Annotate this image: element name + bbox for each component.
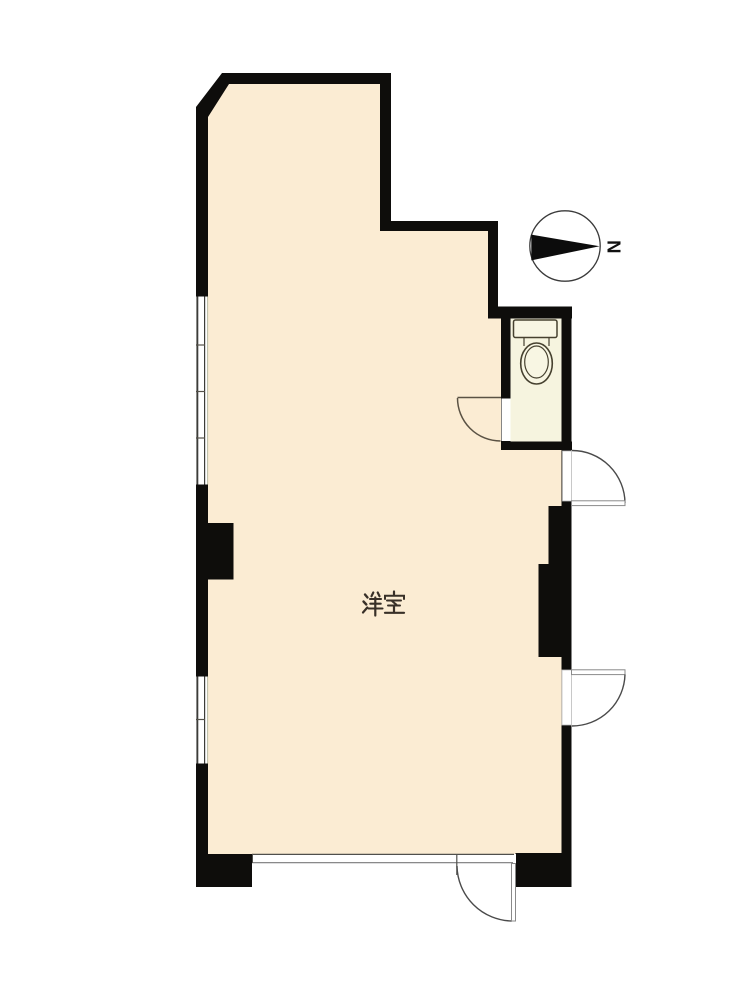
svg-text:N: N bbox=[603, 240, 624, 253]
